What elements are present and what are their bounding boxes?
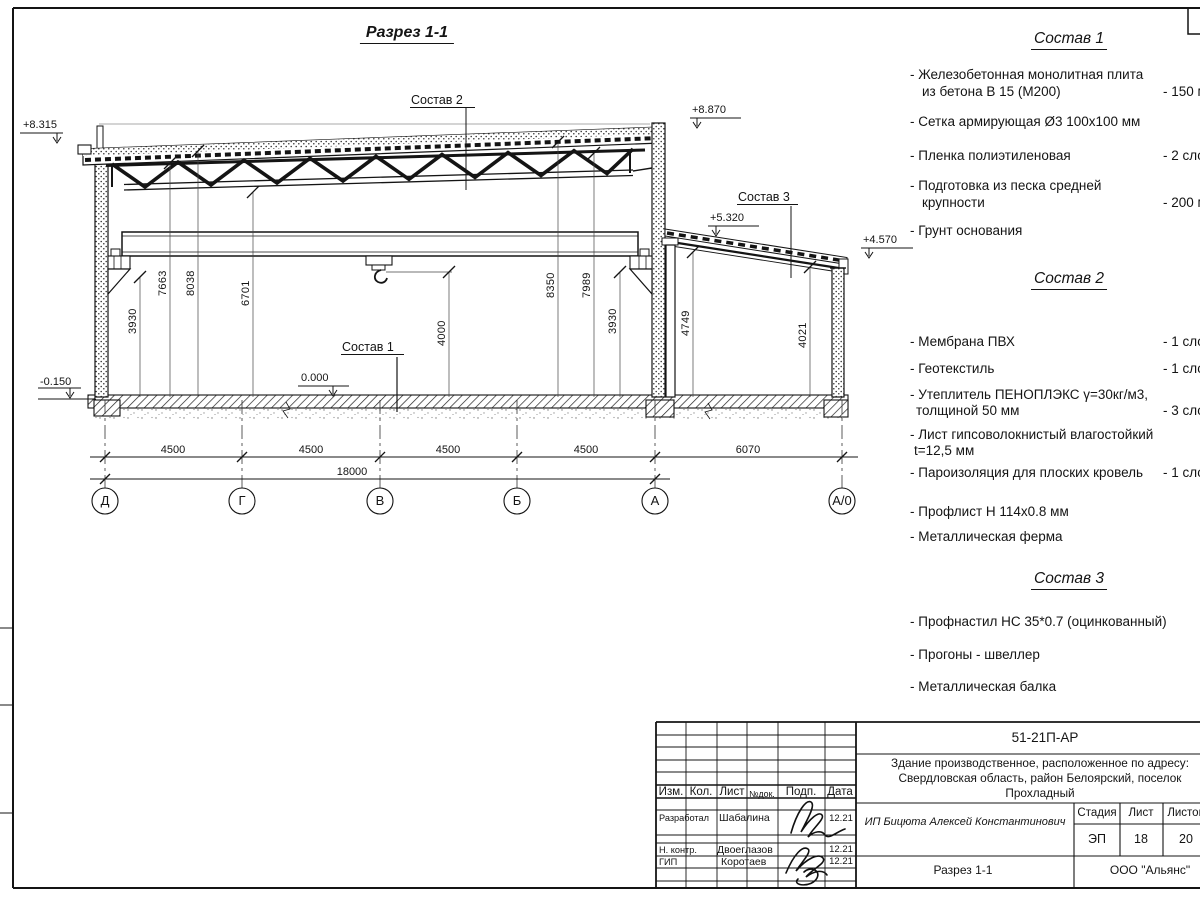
callout-sostav2: Состав 2 (410, 93, 475, 108)
hdim-1: 4500 (161, 444, 185, 457)
sheet-label: Лист (1129, 807, 1154, 820)
spec3-item3: - Металлическая балка (910, 679, 1056, 695)
row3-date: 12.21 (829, 857, 853, 868)
axis-a0: А/0 (832, 494, 852, 509)
spec1-item4-line2: крупности (922, 195, 985, 211)
col-kol: Кол. (690, 786, 713, 799)
spec2-item6: - Профлист Н 114x0.8 мм (910, 504, 1069, 520)
spec2-item3-qty: - 3 сло (1163, 403, 1200, 419)
spec2-item4-line1: - Лист гипсоволокнистый влагостойкий (910, 427, 1153, 443)
view-name: Разрез 1-1 (934, 864, 993, 878)
vdim-3930-right: 3930 (607, 308, 620, 334)
elev-annex-right: +4.570 (863, 234, 897, 247)
sheet-value: 18 (1134, 832, 1148, 846)
spec1-item4-line1: - Подготовка из песка средней (910, 178, 1101, 194)
vdim-8038: 8038 (185, 270, 198, 296)
hdim-5: 6070 (736, 444, 760, 457)
object-line2: Свердловская область, район Белоярский, … (899, 772, 1182, 786)
spec2-item1-qty: - 1 сло (1163, 334, 1200, 350)
spec1-item1-line2: из бетона В 15 (М200) (922, 84, 1061, 100)
company-name: ИП Бицюта Алексей Константинович (865, 816, 1066, 829)
spec2-item3-line2: толщиной 50 мм (916, 403, 1019, 419)
col-data: Дата (827, 786, 852, 799)
axis-d: Д (101, 494, 110, 509)
row1-date: 12.21 (829, 814, 853, 825)
elev-parapet-right: +8.870 (692, 104, 726, 117)
hdim-3: 4500 (436, 444, 460, 457)
signature-2 (786, 848, 827, 885)
row3-role: ГИП (659, 857, 677, 868)
row3-name: Коротаев (721, 856, 766, 868)
vdim-3930-left: 3930 (127, 308, 140, 334)
col-izm: Изм. (659, 786, 684, 799)
org-name: ООО "Альянс" (1110, 864, 1190, 878)
hdim-4: 4500 (574, 444, 598, 457)
spec2-title: Состав 2 (1031, 270, 1107, 290)
elev-ground: -0.150 (40, 376, 71, 389)
sheets-value: 20 (1179, 832, 1193, 846)
row2-role: Н. контр. (659, 845, 697, 856)
spec2-item2: - Геотекстиль (910, 361, 994, 377)
spec1-title: Состав 1 (1031, 30, 1107, 50)
callout-sostav3: Состав 3 (737, 190, 798, 205)
drawing-sheet: { "drawing": { "title": "Разрез 1-1", "c… (0, 0, 1200, 900)
col-doc: №док. (749, 789, 775, 799)
hdim-total: 18000 (337, 466, 368, 479)
axis-a: А (651, 494, 660, 509)
vdim-7663: 7663 (157, 270, 170, 296)
vdim-6701: 6701 (240, 280, 253, 306)
spec3-item2: - Прогоны - швеллер (910, 647, 1040, 663)
stage-value: ЭП (1088, 832, 1106, 846)
right-wall (652, 123, 665, 397)
row2-name: Двоеглазов (717, 844, 773, 856)
row1-name: Шабалина (719, 812, 770, 824)
elev-floor: 0.000 (301, 372, 329, 385)
spec1-item3: - Пленка полиэтиленовая (910, 148, 1071, 164)
spec2-item1: - Мембрана ПВХ (910, 334, 1015, 350)
spec1-item3-qty: - 2 сло (1163, 148, 1200, 164)
axis-v: В (376, 494, 385, 509)
vdim-7989: 7989 (581, 272, 594, 298)
spec2-item4-line2: t=12,5 мм (914, 443, 974, 459)
axis-b: Б (513, 494, 522, 509)
col-list: Лист (720, 786, 745, 799)
spec1-item5: - Грунт основания (910, 223, 1022, 239)
spec2-item3-line1: - Утеплитель ПЕНОПЛЭКС γ=30кг/м3, (910, 387, 1148, 403)
elev-annex-left: +5.320 (710, 212, 744, 225)
spec3-title: Состав 3 (1031, 570, 1107, 590)
spec1-item1-qty: - 150 м (1163, 84, 1200, 100)
col-podp: Подп. (786, 786, 817, 799)
spec1-item4-qty: - 200 м (1163, 195, 1200, 211)
vdim-4749: 4749 (680, 310, 693, 336)
spec2-item2-qty: - 1 сло (1163, 361, 1200, 377)
hdim-2: 4500 (299, 444, 323, 457)
object-line1: Здание производственное, расположенное п… (891, 757, 1189, 771)
spec2-item5-qty: - 1 сло (1163, 465, 1200, 481)
crane-hook-icon (375, 270, 387, 283)
spec3-item1: - Профнастил НС 35*0.7 (оцинкованный) (910, 614, 1167, 630)
doc-number: 51-21П-АР (1012, 730, 1079, 746)
floor-slab (38, 395, 848, 419)
spec2-item5: - Пароизоляция для плоских кровель (910, 465, 1143, 481)
axis-bubbles (92, 488, 855, 514)
callout-sostav1: Состав 1 (341, 340, 404, 355)
spec1-item1-line1: - Железобетонная монолитная плита (910, 67, 1143, 83)
row1-role: Разработал (659, 813, 709, 824)
vdim-4021: 4021 (797, 322, 810, 348)
stage-label: Стадия (1077, 807, 1116, 820)
spec2-item7: - Металлическая ферма (910, 529, 1063, 545)
spec1-item2: - Сетка армирующая Ø3 100x100 мм (910, 114, 1140, 130)
row2-date: 12.21 (829, 845, 853, 856)
vdim-4000: 4000 (436, 320, 449, 346)
elev-roof-left: +8.315 (23, 119, 57, 132)
object-line3: Прохладный (1005, 787, 1074, 801)
sheets-label: Листов (1167, 807, 1200, 820)
view-title: Разрез 1-1 (360, 24, 454, 44)
axis-g: Г (238, 494, 245, 509)
vdim-8350: 8350 (545, 272, 558, 298)
